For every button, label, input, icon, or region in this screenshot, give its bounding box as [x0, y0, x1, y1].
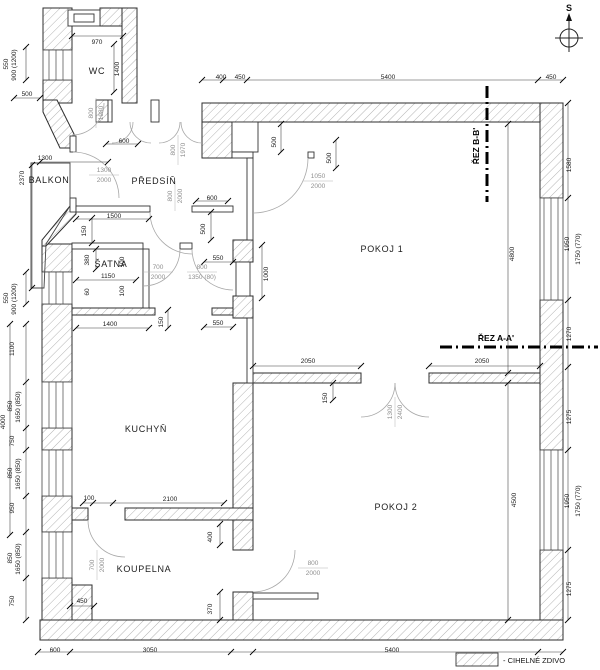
floor-plan: ŘEZ B-B' ŘEZ A-A' S - CIHELNÉ ZDIVO 4004… — [0, 0, 600, 670]
dim-label: 1270 — [566, 326, 573, 341]
opening-spec-text: 1050 — [311, 173, 326, 180]
opening-spec-text: 1970 — [180, 142, 187, 157]
compass-label: S — [566, 3, 572, 13]
dim-label: 850 — [7, 552, 14, 563]
dim-label: 900 (1200) — [11, 283, 18, 314]
opening-spec-label: 8001970 — [170, 135, 187, 165]
floor-plan-canvas: ŘEZ B-B' ŘEZ A-A' S - CIHELNÉ ZDIVO 4004… — [0, 0, 600, 670]
dim-label: 850 — [7, 400, 14, 411]
dim-label: 1300 — [38, 155, 53, 162]
legend-hatch-swatch — [456, 653, 498, 666]
opening-spec-text: 2000 — [177, 188, 184, 203]
dim-label: 1650 (850) — [15, 458, 22, 489]
dim-label: 1275 — [566, 409, 573, 424]
opening-spec-label: 8002000 — [298, 560, 328, 577]
dim-label: 4000 — [0, 414, 7, 429]
dim-label: 900 (1200) — [11, 49, 18, 80]
opening-spec-text: 700 — [89, 559, 96, 570]
opening-spec-text: 1980 — [98, 105, 105, 120]
dim-label: 450 — [546, 74, 557, 81]
dim-label: 1650 (850) — [15, 391, 22, 422]
dim-label: 370 — [207, 603, 214, 614]
dim-label: 950 — [9, 502, 16, 513]
dim-label: 600 — [50, 647, 61, 654]
walls-layer — [40, 8, 563, 640]
opening-spec-text: 2400 — [397, 404, 404, 419]
room-label-satna: ŠATNA — [95, 259, 128, 269]
legend-label: - CIHELNÉ ZDIVO — [503, 656, 565, 665]
dim-label: 4800 — [509, 246, 516, 261]
dim-label: 1400 — [103, 321, 118, 328]
section-label-bb: ŘEZ B-B' — [470, 128, 481, 165]
dim-label: 550 — [213, 255, 224, 262]
dim-label: 1000 — [263, 266, 270, 281]
opening-spec-text: 2000 — [97, 177, 112, 184]
opening-spec-text: 800 — [197, 264, 208, 271]
room-label-balkon: BALKON — [29, 175, 70, 185]
dim-label: 2370 — [19, 170, 26, 185]
dim-label: 1275 — [566, 581, 573, 596]
dim-label: 500 — [22, 91, 33, 98]
opening-spec-text: 800 — [308, 560, 319, 567]
dim-label: 550 — [213, 320, 224, 327]
dim-label: 2050 — [475, 358, 490, 365]
dim-label: 450 — [235, 74, 246, 81]
dim-label: 4500 — [511, 492, 518, 507]
opening-spec-label: 8001350 (80) — [187, 264, 217, 281]
dim-label: 550 — [3, 292, 10, 303]
dim-label: 3050 — [143, 647, 158, 654]
north-arrow-icon — [566, 13, 572, 21]
dim-label: 2050 — [301, 358, 316, 365]
legend: - CIHELNÉ ZDIVO — [456, 653, 565, 666]
dim-label: 100 — [119, 285, 126, 296]
opening-spec-text: 2000 — [151, 274, 166, 281]
dim-label: 850 — [7, 467, 14, 478]
dim-label: 1400 — [114, 61, 121, 76]
room-label-wc: WC — [89, 66, 105, 76]
opening-spec-text: 2000 — [311, 183, 326, 190]
dim-label: 60 — [84, 288, 91, 296]
dim-label: 500 — [200, 223, 207, 234]
dim-label: 150 — [81, 225, 88, 236]
dim-label: 1950 — [564, 493, 571, 508]
dim-label: 150 — [322, 392, 329, 403]
room-label-predsin: PŘEDSÍŇ — [131, 176, 176, 186]
dim-label: 750 — [9, 435, 16, 446]
dim-label: 750 — [9, 595, 16, 606]
dim-label: 550 — [3, 58, 10, 69]
dim-label: 2100 — [163, 496, 178, 503]
dim-label: 500 — [326, 152, 333, 163]
dim-label: 600 — [207, 195, 218, 202]
opening-spec-text: 1300 — [387, 404, 394, 419]
dim-label: 1150 — [101, 273, 115, 280]
opening-spec-text: 800 — [88, 107, 95, 118]
dim-label: 380 — [84, 254, 91, 265]
opening-spec-label: 10502000 — [303, 173, 333, 190]
dim-label: 5400 — [385, 647, 400, 654]
opening-spec-label: 7002000 — [89, 550, 106, 580]
opening-spec-text: 700 — [153, 264, 164, 271]
dim-label: 1950 — [564, 236, 571, 251]
opening-spec-text: 1300 — [97, 167, 112, 174]
dim-label: 1750 (770) — [575, 485, 582, 516]
dim-label: 500 — [271, 136, 278, 147]
opening-spec-text: 2000 — [306, 570, 321, 577]
dim-label: 100 — [84, 495, 95, 502]
dim-label: 450 — [77, 598, 88, 605]
room-label-koupelna: KOUPELNA — [117, 564, 172, 574]
dim-label: 5400 — [381, 74, 396, 81]
dim-label: 400 — [207, 531, 214, 542]
dim-label: 1100 — [9, 342, 16, 356]
section-label-aa: ŘEZ A-A' — [478, 332, 514, 343]
opening-spec-text: 800 — [170, 144, 177, 155]
opening-spec-text: 2000 — [99, 557, 106, 572]
opening-spec-label: 13002000 — [89, 167, 119, 184]
section-lines — [440, 86, 598, 347]
opening-spec-text: 800 — [167, 190, 174, 201]
dim-label: 150 — [158, 316, 165, 327]
opening-spec-text: 1350 (80) — [188, 274, 216, 281]
room-label-pokoj1: POKOJ 1 — [360, 244, 403, 254]
north-compass: S — [555, 3, 583, 52]
dim-label: 1750 (770) — [575, 233, 582, 264]
room-label-pokoj2: POKOJ 2 — [374, 502, 417, 512]
room-label-kuchyn: KUCHYŇ — [125, 424, 167, 434]
dim-label: 1500 — [107, 213, 122, 220]
dim-label: 970 — [92, 39, 103, 46]
dim-label: 1650 (850) — [15, 543, 22, 574]
dim-label: 1580 — [566, 157, 573, 172]
dim-label: 600 — [119, 138, 130, 145]
dim-label: 400 — [216, 74, 227, 81]
